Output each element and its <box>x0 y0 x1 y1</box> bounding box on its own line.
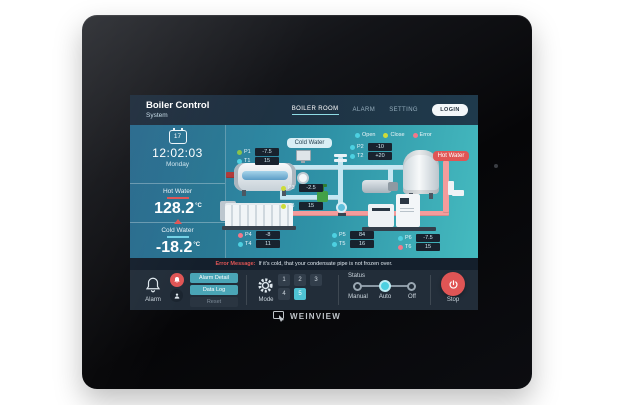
hot-water-panel: Hot Water 128.2°C <box>130 184 225 223</box>
sensor-P4: P4-8 <box>238 231 280 239</box>
divider <box>338 275 339 305</box>
error-message-bar: Error Message: If it's cold, that your c… <box>130 258 478 270</box>
status-option-auto[interactable]: Auto <box>373 294 397 300</box>
tank-sight-glass <box>242 171 288 180</box>
pump-stand <box>338 213 346 216</box>
sensor-T2: T2+20 <box>350 152 392 160</box>
control-cabinet-tall <box>396 194 420 227</box>
legend-close: Close <box>383 132 404 138</box>
cabinet-vent <box>372 208 390 211</box>
mode-section-label: Mode <box>253 297 279 303</box>
sensor-P6: P6-7.5 <box>398 234 440 242</box>
header: Boiler Control System BOILER ROOM ALARM … <box>130 95 478 125</box>
cold-water-label: Cold Water <box>130 223 225 234</box>
sidebar: 17 12:02:03 Monday Hot Water 128.2°C Col… <box>130 125 226 258</box>
sensor-T4: T411 <box>238 240 280 248</box>
cold-water-tag: Cold Water <box>287 138 332 148</box>
status-dot <box>237 159 242 164</box>
hot-underline <box>167 197 189 199</box>
pump-icon <box>336 202 347 213</box>
alarm-bell-icon <box>173 276 181 284</box>
sensor-T5: T516 <box>332 240 374 248</box>
login-button[interactable]: LOGIN <box>432 104 468 116</box>
sensor-P1: P1-7.5 <box>237 148 279 156</box>
tab-alarm[interactable]: ALARM <box>353 107 376 113</box>
status-dot <box>350 145 355 150</box>
tab-setting[interactable]: SETTING <box>389 107 418 113</box>
close-dot-icon <box>383 133 388 138</box>
clock-weekday: Monday <box>130 161 225 168</box>
status-knob-manual[interactable] <box>353 282 362 291</box>
tank-leg <box>242 190 246 196</box>
tank-leg <box>429 193 433 199</box>
gear-icon <box>257 277 274 294</box>
legend-error: Error <box>413 132 432 138</box>
status-option-manual[interactable]: Manual <box>344 294 372 300</box>
status-dot <box>332 242 337 247</box>
alarm-mute-button[interactable] <box>170 289 183 302</box>
divider <box>246 275 247 305</box>
status-knob-auto-active[interactable] <box>379 280 391 292</box>
outlet-elbow-icon <box>452 190 464 196</box>
app-title-block: Boiler Control System <box>146 101 209 119</box>
mode-button-5-active[interactable]: 5 <box>294 288 306 300</box>
bell-icon <box>144 276 162 294</box>
sensor-P5: P584 <box>332 231 374 239</box>
cold-water-unit: °C <box>193 242 200 248</box>
cold-pipe-lower <box>280 195 342 200</box>
page-subtitle: System <box>146 112 209 119</box>
status-dot <box>238 242 243 247</box>
status-option-off[interactable]: Off <box>402 294 422 300</box>
control-cabinet-small <box>368 204 394 227</box>
open-dot-icon <box>355 133 360 138</box>
status-knob-off[interactable] <box>407 282 416 291</box>
error-text: If it's cold, that your condensate pipe … <box>259 261 393 267</box>
tab-boiler-room[interactable]: BOILER ROOM <box>292 106 339 115</box>
stop-button[interactable] <box>441 272 465 296</box>
sensor-station-icon <box>296 150 311 161</box>
data-log-button[interactable]: Data Log <box>190 285 238 295</box>
reset-button[interactable]: Reset <box>190 297 238 307</box>
cabinet-vent <box>400 208 414 213</box>
status-dot <box>238 233 243 238</box>
circulation-pump <box>362 180 392 193</box>
brand-logo-text: WEINVIEW <box>290 312 341 321</box>
status-dot <box>281 186 286 191</box>
alarm-section-label: Alarm <box>140 297 166 303</box>
power-icon <box>448 279 459 290</box>
bezel-led-dot <box>494 164 498 168</box>
sensor-P3: P3-2.5 <box>281 184 323 192</box>
hot-water-unit: °C <box>195 203 202 209</box>
valve-legend: Open Close Error <box>355 132 432 138</box>
error-dot-icon <box>413 133 418 138</box>
valve-icon <box>317 191 328 202</box>
pipe-flange-icon <box>334 154 347 157</box>
sensor-T3: T315 <box>281 202 323 210</box>
stop-button-label: Stop <box>441 297 465 303</box>
divider <box>430 275 431 305</box>
calendar-icon: 17 <box>169 130 187 144</box>
alarm-detail-button[interactable]: Alarm Detail <box>190 273 238 283</box>
alarm-active-button[interactable] <box>170 273 184 287</box>
control-bar: Alarm Alarm Detail Data Log Reset Mode 1… <box>130 270 478 310</box>
sensor-T1: T115 <box>237 157 279 165</box>
status-dot <box>398 236 403 241</box>
status-dot <box>281 204 286 209</box>
clock-panel: 17 12:02:03 Monday <box>130 130 225 184</box>
cold-water-value: -18.2°C <box>130 239 225 257</box>
top-nav: BOILER ROOM ALARM SETTING LOGIN <box>292 104 468 116</box>
status-section-label: Status <box>348 273 372 279</box>
sensor-P2: P2-10 <box>350 143 392 151</box>
status-dot <box>237 150 242 155</box>
cold-water-panel: Cold Water -18.2°C <box>130 223 225 263</box>
status-dot <box>332 233 337 238</box>
pipe-flange-icon <box>334 159 347 162</box>
mode-button-4[interactable]: 4 <box>278 288 290 300</box>
clock-time: 12:02:03 <box>130 146 225 160</box>
page-title: Boiler Control <box>146 101 209 111</box>
hot-water-label: Hot Water <box>130 184 225 195</box>
hmi-device: Boiler Control System BOILER ROOM ALARM … <box>82 15 532 389</box>
sensor-T6: T615 <box>398 243 440 251</box>
status-dot <box>350 154 355 159</box>
radiator-base <box>222 226 296 230</box>
status-dot <box>398 245 403 250</box>
mode-button-1[interactable]: 1 <box>278 274 290 286</box>
error-label: Error Message: <box>215 261 255 267</box>
mode-button-3[interactable]: 3 <box>310 274 322 286</box>
cold-underline <box>167 236 189 238</box>
pump-icon <box>297 172 309 184</box>
weinview-logo-icon <box>273 311 286 322</box>
brand-logo: WEINVIEW <box>82 311 532 322</box>
legend-open: Open <box>355 132 375 138</box>
cabinet-display <box>400 198 409 204</box>
hot-water-value: 128.2°C <box>130 200 225 218</box>
mode-button-2[interactable]: 2 <box>294 274 306 286</box>
hot-water-tag: Hot Water <box>433 151 469 161</box>
person-icon <box>173 292 181 300</box>
hmi-screen: Boiler Control System BOILER ROOM ALARM … <box>130 95 478 310</box>
